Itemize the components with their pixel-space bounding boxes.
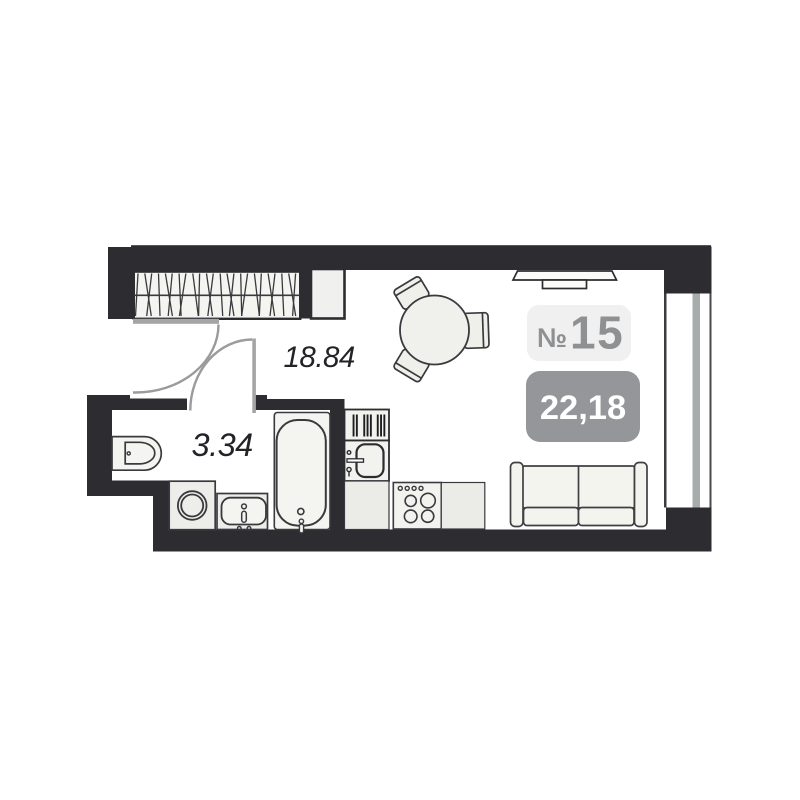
svg-text:3.34: 3.34 (192, 427, 253, 463)
svg-text:18.84: 18.84 (284, 341, 355, 374)
svg-text:22,18: 22,18 (540, 389, 626, 427)
svg-text:№: № (537, 323, 567, 353)
svg-text:15: 15 (570, 307, 624, 359)
